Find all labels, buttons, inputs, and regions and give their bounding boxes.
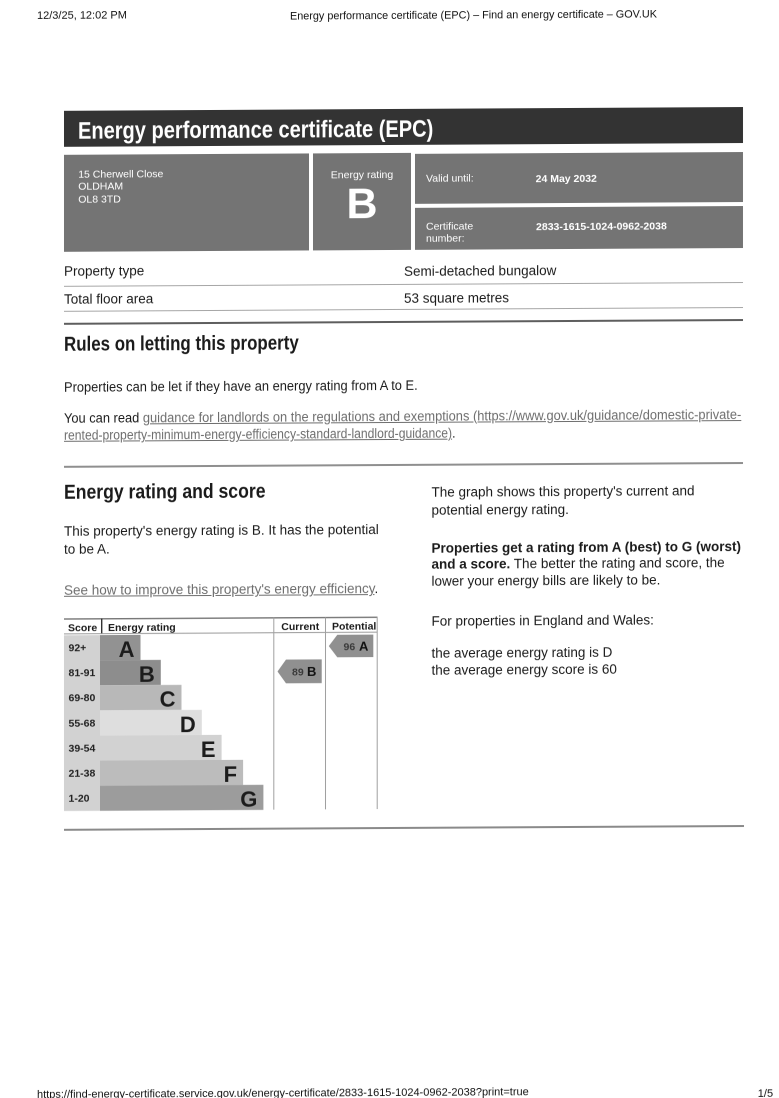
svg-text:1-20: 1-20	[69, 793, 90, 805]
svg-text:A: A	[359, 638, 369, 653]
svg-text:B: B	[139, 662, 155, 687]
svg-text:F: F	[224, 762, 237, 787]
svg-text:G: G	[240, 787, 257, 812]
svg-text:C: C	[160, 687, 176, 712]
svg-text:89: 89	[292, 666, 304, 678]
svg-text:55-68: 55-68	[69, 717, 96, 729]
svg-text:D: D	[180, 712, 196, 737]
svg-text:21-38: 21-38	[69, 768, 96, 780]
svg-text:Score: Score	[68, 622, 97, 634]
svg-text:Current: Current	[281, 621, 319, 633]
svg-text:96: 96	[344, 641, 356, 653]
svg-text:Energy rating: Energy rating	[108, 622, 176, 634]
svg-text:39-54: 39-54	[69, 743, 96, 755]
svg-text:E: E	[201, 737, 216, 762]
svg-text:B: B	[307, 664, 316, 679]
svg-text:Potential: Potential	[332, 621, 376, 633]
svg-text:92+: 92+	[69, 642, 87, 654]
svg-text:A: A	[119, 637, 135, 662]
svg-text:81-91: 81-91	[69, 667, 96, 679]
svg-text:69-80: 69-80	[69, 692, 96, 704]
